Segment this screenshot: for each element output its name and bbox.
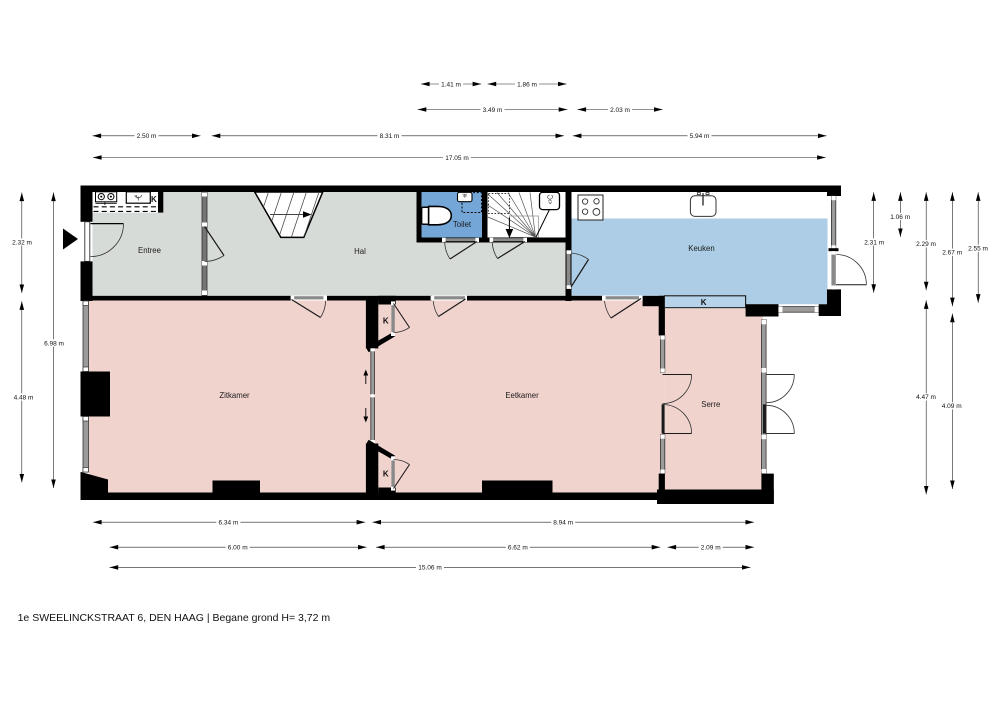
- svg-text:Toilet: Toilet: [453, 220, 472, 229]
- svg-text:1.41 m: 1.41 m: [441, 81, 461, 88]
- svg-text:1.06 m: 1.06 m: [890, 214, 910, 221]
- svg-text:K: K: [151, 195, 157, 204]
- svg-text:Hal: Hal: [354, 247, 366, 256]
- svg-text:2.03 m: 2.03 m: [610, 107, 630, 114]
- svg-text:8.31 m: 8.31 m: [380, 133, 400, 140]
- svg-text:1.86 m: 1.86 m: [517, 81, 537, 88]
- svg-text:8.94 m: 8.94 m: [553, 520, 573, 527]
- svg-text:K: K: [701, 298, 707, 307]
- svg-text:Zitkamer: Zitkamer: [219, 391, 250, 400]
- svg-text:17.05 m: 17.05 m: [445, 155, 469, 162]
- svg-text:2.32 m: 2.32 m: [12, 239, 32, 246]
- svg-text:2.31 m: 2.31 m: [864, 239, 884, 246]
- svg-text:2.50 m: 2.50 m: [137, 133, 157, 140]
- svg-text:Entree: Entree: [138, 246, 161, 255]
- svg-text:5.94 m: 5.94 m: [690, 133, 710, 140]
- svg-text:6.62 m: 6.62 m: [508, 545, 528, 552]
- svg-text:Serre: Serre: [701, 400, 720, 409]
- svg-text:4.48 m: 4.48 m: [14, 394, 34, 401]
- svg-text:4.47 m: 4.47 m: [916, 394, 936, 401]
- svg-text:2.67 m: 2.67 m: [942, 250, 962, 257]
- svg-text:6.98 m: 6.98 m: [44, 340, 64, 347]
- svg-text:2.09 m: 2.09 m: [701, 545, 721, 552]
- svg-text:3.49 m: 3.49 m: [483, 107, 503, 114]
- svg-text:6.34 m: 6.34 m: [218, 520, 238, 527]
- svg-text:2.55 m: 2.55 m: [968, 246, 988, 253]
- svg-text:K: K: [383, 317, 389, 326]
- svg-text:K: K: [383, 470, 389, 479]
- svg-text:2.29 m: 2.29 m: [916, 241, 936, 248]
- svg-text:Eetkamer: Eetkamer: [505, 391, 539, 400]
- svg-text:15.06 m: 15.06 m: [418, 565, 442, 572]
- svg-text:Keuken: Keuken: [688, 244, 714, 253]
- svg-text:6.00 m: 6.00 m: [228, 545, 248, 552]
- svg-text:4.09 m: 4.09 m: [942, 403, 962, 410]
- svg-text:1e SWEELINCKSTRAAT 6, DEN HAAG: 1e SWEELINCKSTRAAT 6, DEN HAAG | Begane …: [18, 612, 331, 624]
